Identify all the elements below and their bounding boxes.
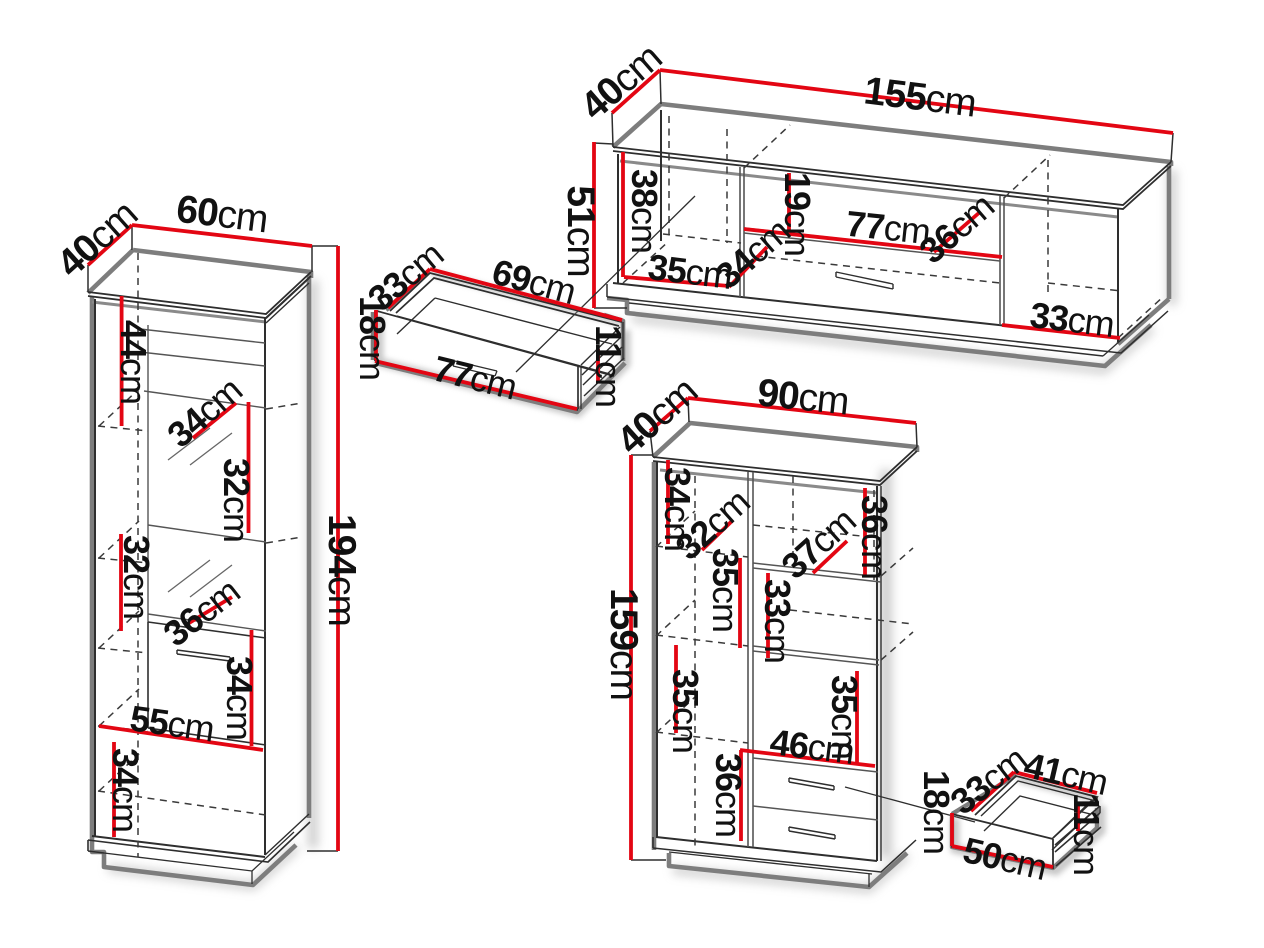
svg-text:77cm: 77cm bbox=[429, 347, 520, 407]
svg-text:50cm: 50cm bbox=[959, 829, 1050, 888]
svg-text:33cm: 33cm bbox=[1028, 294, 1116, 345]
svg-text:51cm: 51cm bbox=[560, 185, 603, 276]
svg-text:34cm: 34cm bbox=[159, 369, 249, 455]
svg-text:32cm: 32cm bbox=[217, 458, 258, 542]
svg-text:35cm: 35cm bbox=[706, 548, 747, 632]
svg-text:40cm: 40cm bbox=[572, 36, 669, 128]
svg-text:36cm: 36cm bbox=[709, 753, 750, 837]
svg-text:46cm: 46cm bbox=[768, 721, 856, 772]
svg-text:159cm: 159cm bbox=[603, 588, 646, 700]
svg-text:90cm: 90cm bbox=[755, 371, 850, 423]
svg-text:38cm: 38cm bbox=[625, 169, 666, 253]
svg-text:32cm: 32cm bbox=[117, 535, 158, 619]
svg-text:34cm: 34cm bbox=[106, 748, 147, 832]
svg-text:33cm: 33cm bbox=[758, 579, 799, 663]
svg-text:35cm: 35cm bbox=[666, 669, 707, 753]
svg-text:194cm: 194cm bbox=[321, 514, 364, 626]
svg-text:36cm: 36cm bbox=[855, 495, 896, 579]
svg-text:34cm: 34cm bbox=[220, 656, 261, 740]
svg-text:44cm: 44cm bbox=[114, 320, 155, 404]
svg-text:18cm: 18cm bbox=[917, 770, 958, 854]
svg-text:155cm: 155cm bbox=[862, 69, 978, 125]
svg-text:40cm: 40cm bbox=[49, 192, 146, 285]
svg-text:11cm: 11cm bbox=[589, 325, 630, 407]
svg-text:55cm: 55cm bbox=[128, 697, 217, 749]
svg-text:18cm: 18cm bbox=[353, 296, 394, 380]
svg-text:36cm: 36cm bbox=[155, 570, 246, 654]
svg-text:11cm: 11cm bbox=[1067, 793, 1108, 875]
